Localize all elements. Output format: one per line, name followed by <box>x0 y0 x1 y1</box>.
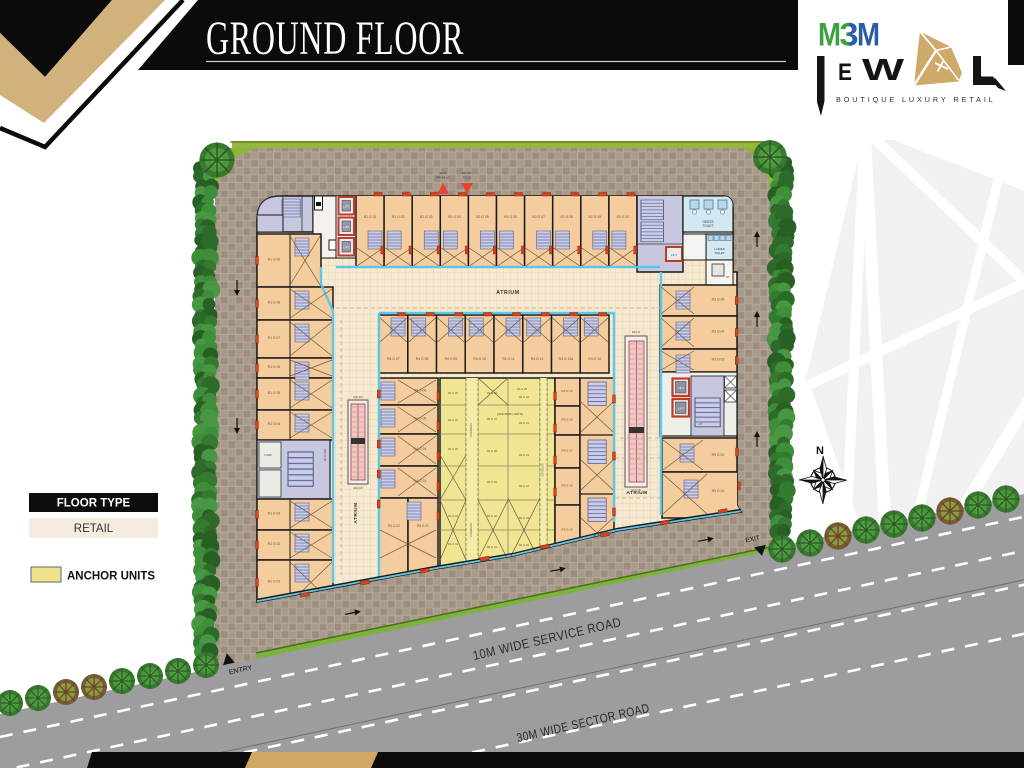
svg-text:R2 G 05: R2 G 05 <box>476 215 489 219</box>
svg-text:(ANCHOR UNITS): (ANCHOR UNITS) <box>497 412 523 416</box>
svg-text:R9 G 01: R9 G 01 <box>712 489 725 493</box>
svg-text:BOUTIQUE LUXURY RETAIL: BOUTIQUE LUXURY RETAIL <box>836 95 995 104</box>
svg-text:R4 G 24: R4 G 24 <box>519 421 530 425</box>
svg-text:R4 G 25: R4 G 25 <box>517 387 528 391</box>
svg-text:R1 G 04: R1 G 04 <box>268 422 281 426</box>
svg-text:R4 G 40: R4 G 40 <box>487 514 498 518</box>
svg-text:R4 G 33: R4 G 33 <box>448 447 459 451</box>
svg-text:R4 G 01: R4 G 01 <box>417 524 429 528</box>
svg-text:ATRIUM: ATRIUM <box>626 490 647 496</box>
svg-text:R2 G 06: R2 G 06 <box>504 215 517 219</box>
svg-text:LIFT: LIFT <box>678 386 684 390</box>
svg-text:R4 G 34: R4 G 34 <box>448 418 459 422</box>
svg-text:R1 G 02: R1 G 02 <box>268 542 281 546</box>
svg-text:R4 G 16: R4 G 16 <box>561 418 573 422</box>
svg-text:R4 G 22: R4 G 22 <box>519 484 530 488</box>
svg-text:R3 G 05: R3 G 05 <box>712 298 725 302</box>
svg-text:CORRIDOR: CORRIDOR <box>469 423 473 437</box>
svg-text:R4 G 08: R4 G 08 <box>416 357 429 361</box>
svg-text:N: N <box>816 445 824 457</box>
svg-text:ATRIUM: ATRIUM <box>353 502 359 523</box>
svg-text:R4 G 05: R4 G 05 <box>414 417 427 421</box>
svg-text:R3 G 04: R3 G 04 <box>712 330 725 334</box>
svg-text:R3 G 03: R3 G 03 <box>712 358 725 362</box>
svg-text:R1 G 09: R1 G 09 <box>268 258 281 262</box>
svg-text:CORRIDOR: CORRIDOR <box>542 463 545 476</box>
svg-text:R1 G 06: R1 G 06 <box>268 365 281 369</box>
svg-text:R2 G 09: R2 G 09 <box>588 215 601 219</box>
svg-text:LIFT: LIFT <box>343 225 349 229</box>
svg-text:R4 G 26: R4 G 26 <box>519 395 530 399</box>
svg-text:GROUND FLOOR: GROUND FLOOR <box>206 12 464 65</box>
svg-text:R4 G 20: R4 G 20 <box>519 543 530 547</box>
svg-text:LP: LP <box>698 422 702 426</box>
svg-text:R4 G 29: R4 G 29 <box>519 516 530 520</box>
svg-text:ESC DN: ESC DN <box>353 396 362 399</box>
svg-text:EXIT: EXIT <box>440 171 447 175</box>
svg-text:R4 G 12a: R4 G 12a <box>559 357 574 361</box>
svg-text:CORRIDOR: CORRIDOR <box>469 523 473 537</box>
svg-text:R1 G 05: R1 G 05 <box>268 391 281 395</box>
svg-text:M: M <box>857 17 880 53</box>
svg-text:W: W <box>862 52 905 87</box>
svg-text:R4 G 39: R4 G 39 <box>487 480 498 484</box>
svg-text:E: E <box>838 59 852 86</box>
svg-text:R4 G 07: R4 G 07 <box>387 357 400 361</box>
svg-text:R1 G 08: R1 G 08 <box>268 301 281 305</box>
svg-text:R4 G 36: R4 G 36 <box>487 391 498 395</box>
svg-text:FLOOR TYPE: FLOOR TYPE <box>57 498 131 510</box>
svg-text:ESC IN: ESC IN <box>632 331 640 334</box>
svg-text:R2 G 07: R2 G 07 <box>532 215 545 219</box>
svg-text:R4 G 17: R4 G 17 <box>561 449 573 453</box>
svg-text:ENTRY: ENTRY <box>462 171 472 175</box>
svg-text:RETAIL: RETAIL <box>74 523 114 535</box>
svg-text:R2 G 03: R2 G 03 <box>420 215 433 219</box>
svg-text:R9 G 02: R9 G 02 <box>712 453 725 457</box>
svg-text:FROM LG: FROM LG <box>436 176 450 180</box>
svg-text:ANCHOR UNITS: ANCHOR UNITS <box>67 569 155 583</box>
svg-text:R2 G 02: R2 G 02 <box>392 215 405 219</box>
svg-text:R2 G 10: R2 G 10 <box>617 215 630 219</box>
svg-text:TOILET: TOILET <box>714 251 725 255</box>
svg-text:TOILET: TOILET <box>702 224 713 228</box>
svg-text:R4 G 41: R4 G 41 <box>487 545 498 549</box>
svg-text:3: 3 <box>840 17 859 53</box>
svg-text:R2 G 01: R2 G 01 <box>364 215 377 219</box>
svg-text:LIFT: LIFT <box>678 407 684 411</box>
svg-text:R2 G 04: R2 G 04 <box>448 215 461 219</box>
svg-text:R4 G 23: R4 G 23 <box>519 453 530 457</box>
svg-text:M: M <box>818 17 841 53</box>
svg-text:R4 G 12: R4 G 12 <box>531 357 544 361</box>
svg-text:LIFT: LIFT <box>671 253 677 257</box>
svg-text:R4 G 38: R4 G 38 <box>487 449 498 453</box>
svg-text:R4 G 14: R4 G 14 <box>588 357 601 361</box>
svg-text:R4 G 09: R4 G 09 <box>445 357 458 361</box>
svg-text:HT: HT <box>726 275 730 279</box>
svg-text:TO LG: TO LG <box>463 176 473 180</box>
svg-text:LIFT: LIFT <box>343 246 349 250</box>
svg-text:R4 G 03: R4 G 03 <box>414 479 427 483</box>
svg-text:R1 G 03: R1 G 03 <box>268 512 281 516</box>
svg-text:R4 G 35: R4 G 35 <box>448 391 459 395</box>
svg-text:R4 G 32: R4 G 32 <box>448 514 459 518</box>
svg-text:R2 G 08: R2 G 08 <box>560 215 573 219</box>
svg-text:R4 G 10: R4 G 10 <box>473 357 486 361</box>
svg-text:ATRIUM: ATRIUM <box>496 290 519 296</box>
svg-text:R4 G 11: R4 G 11 <box>502 357 514 361</box>
svg-text:R4 G 15: R4 G 15 <box>561 389 573 393</box>
svg-text:R4 G 37: R4 G 37 <box>487 417 498 421</box>
svg-text:LIFT: LIFT <box>343 205 349 209</box>
svg-text:ESC UP: ESC UP <box>354 487 363 490</box>
svg-text:K WSP: K WSP <box>264 454 272 457</box>
svg-text:R4 G 02: R4 G 02 <box>388 524 400 528</box>
svg-text:R4 G 31: R4 G 31 <box>448 542 459 546</box>
svg-text:R1 G 01: R1 G 01 <box>268 580 281 584</box>
svg-text:R1 G 07: R1 G 07 <box>268 336 281 340</box>
svg-text:R4 G 06: R4 G 06 <box>414 389 427 393</box>
svg-text:R4 G 18: R4 G 18 <box>561 484 573 488</box>
svg-text:R4 G 04: R4 G 04 <box>414 447 427 451</box>
svg-text:R1 G 05A: R1 G 05A <box>323 449 327 461</box>
svg-text:R4 G 19: R4 G 19 <box>561 528 573 532</box>
